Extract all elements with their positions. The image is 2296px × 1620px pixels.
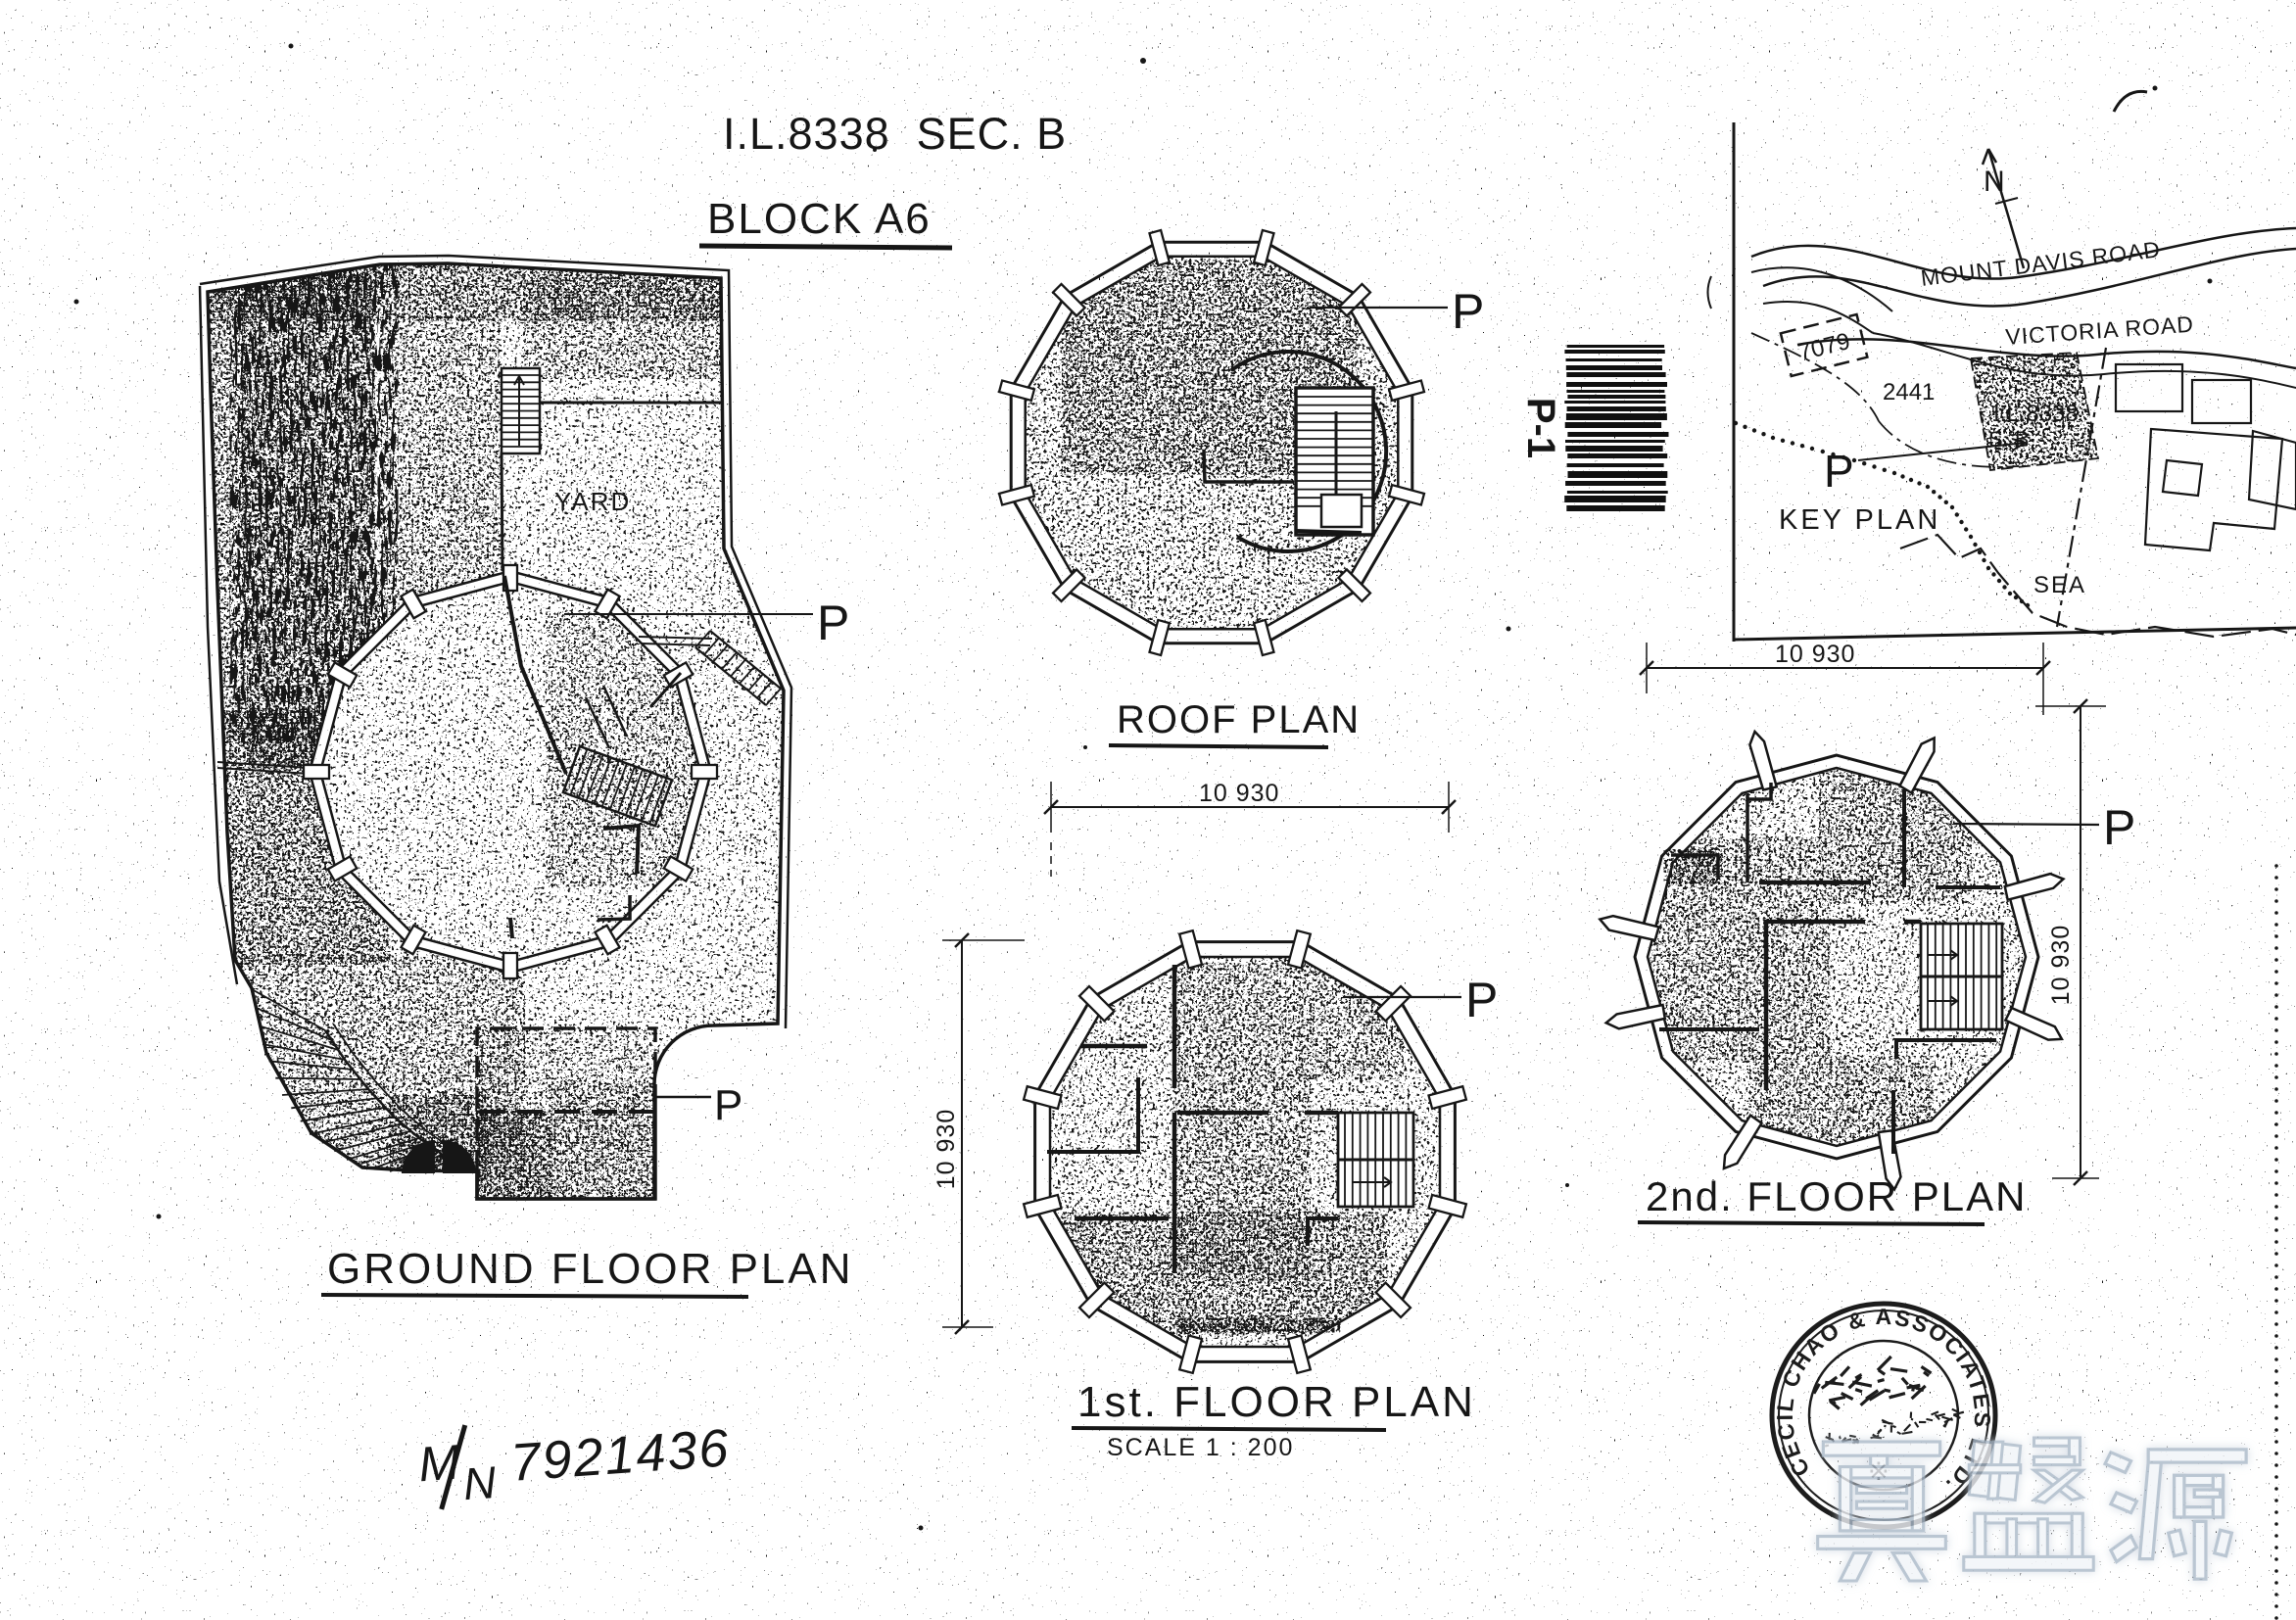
svg-text:N: N: [1984, 166, 2005, 198]
svg-text:10 930: 10 930: [2047, 925, 2075, 1005]
svg-text:P-1: P-1: [1519, 398, 1562, 458]
svg-text:2441: 2441: [1883, 379, 1935, 405]
svg-text:P: P: [714, 1081, 742, 1129]
svg-text:P: P: [1465, 973, 1498, 1027]
svg-text:P: P: [817, 596, 849, 650]
svg-text:10 930: 10 930: [1775, 641, 1855, 668]
svg-text:ROOF PLAN: ROOF PLAN: [1117, 698, 1361, 741]
svg-text:I.L.8338 SEC. B: I.L.8338 SEC. B: [723, 109, 1067, 159]
svg-text:2nd. FLOOR PLAN: 2nd. FLOOR PLAN: [1646, 1173, 2027, 1219]
svg-text:GROUND FLOOR PLAN: GROUND FLOOR PLAN: [327, 1245, 854, 1293]
svg-text:SEA: SEA: [2033, 572, 2086, 598]
svg-text:YARD: YARD: [554, 487, 631, 516]
svg-text:KEY PLAN: KEY PLAN: [1779, 504, 1940, 536]
svg-text:BLOCK A6: BLOCK A6: [707, 195, 932, 243]
svg-text:10 930: 10 930: [933, 1109, 960, 1189]
svg-text:10 930: 10 930: [1199, 780, 1279, 807]
svg-text:P: P: [2103, 800, 2135, 855]
svg-text:SCALE 1 : 200: SCALE 1 : 200: [1107, 1434, 1294, 1461]
svg-text:1st. FLOOR PLAN: 1st. FLOOR PLAN: [1077, 1378, 1476, 1426]
svg-text:N: N: [461, 1456, 499, 1509]
svg-text:P: P: [1452, 284, 1484, 339]
svg-text:I.L.8338: I.L.8338: [1993, 401, 2079, 427]
svg-text:S. B: S. B: [1988, 427, 2030, 452]
svg-text:P: P: [1824, 446, 1854, 497]
